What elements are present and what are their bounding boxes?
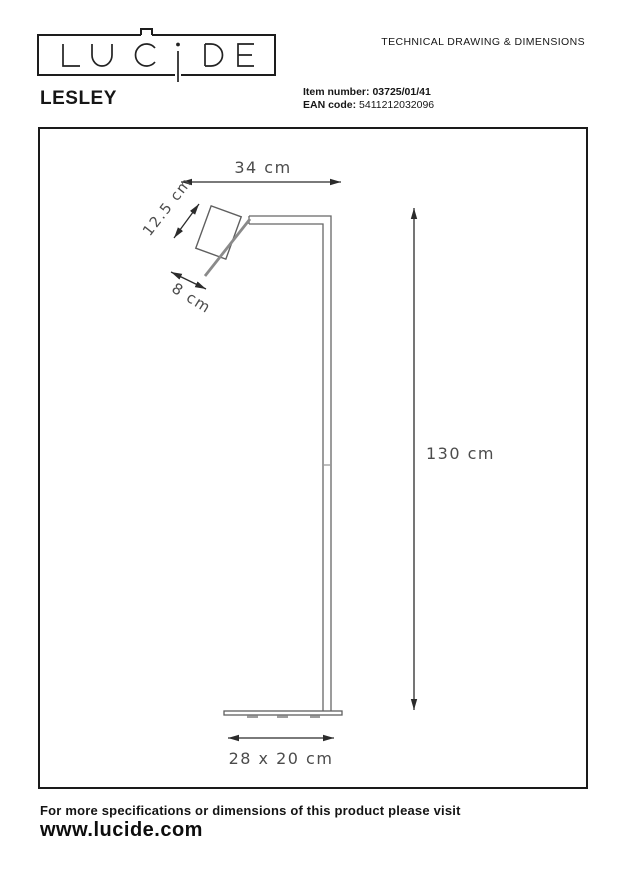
datasheet-page: { "header": { "logo_text": "LUCIDE", "do…: [0, 0, 620, 877]
item-number-label: Item number:: [303, 86, 370, 98]
ean-label: EAN code:: [303, 99, 356, 111]
dim-line-shade-length: [174, 204, 199, 238]
lamp-arm-outer: [249, 216, 331, 711]
logo-letters: [63, 44, 254, 82]
document-title: TECHNICAL DRAWING & DIMENSIONS: [381, 36, 585, 48]
product-name: LESLEY: [40, 88, 117, 110]
dimension-lines: [171, 182, 414, 738]
dim-label-base: 28 x 20 cm: [229, 749, 334, 768]
dim-label-width: 34 cm: [234, 158, 291, 177]
website-link[interactable]: www.lucide.com: [40, 819, 203, 842]
dim-label-height: 130 cm: [426, 444, 495, 463]
logo-box: [38, 29, 275, 75]
lamp-base: [224, 711, 342, 715]
technical-drawing: 34 cm 12.5 cm 8 cm 130 cm 28 x 20 cm: [38, 127, 588, 789]
lamp-outline: [196, 206, 342, 717]
lucide-logo: [36, 27, 278, 85]
drawing-frame: [39, 128, 587, 788]
dim-label-shade-diameter: 8 cm: [168, 279, 214, 317]
item-number-row: Item number: 03725/01/41: [303, 86, 434, 99]
ean-row: EAN code: 5411212032096: [303, 99, 434, 112]
ean-value: 5411212032096: [359, 99, 434, 111]
logo-i-dot: [176, 43, 180, 47]
item-number-value: 03725/01/41: [372, 86, 430, 98]
footer-note: For more specifications or dimensions of…: [40, 803, 461, 818]
lamp-arm-inner: [249, 224, 323, 711]
dim-label-shade-length: 12.5 cm: [140, 175, 195, 240]
lamp-shade: [196, 206, 241, 259]
product-identifiers: Item number: 03725/01/41 EAN code: 54112…: [303, 86, 434, 112]
